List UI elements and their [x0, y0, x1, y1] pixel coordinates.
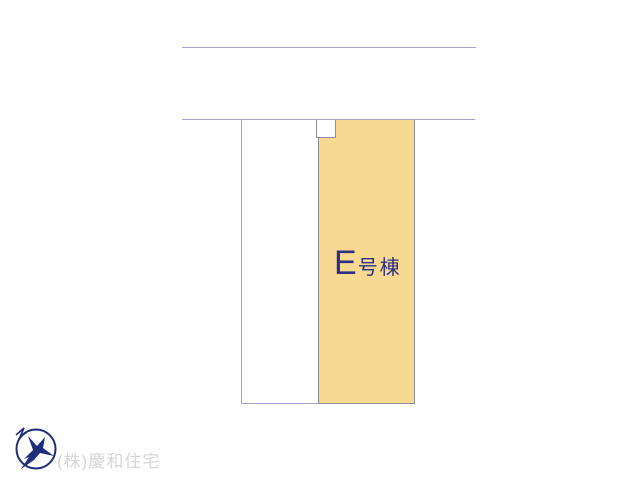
neighbor-plot [241, 119, 320, 404]
plot-notch [316, 119, 336, 138]
plot-label-main: E [334, 244, 358, 282]
company-name: (株)慶和住宅 [57, 447, 160, 472]
footer: (株)慶和住宅 [0, 420, 260, 480]
plot-building-e: E号棟 [318, 119, 415, 404]
road-boundary-line-bottom [182, 119, 475, 120]
road-boundary-line-top [182, 47, 476, 48]
plot-label-suffix: 号棟 [358, 257, 402, 279]
bird-logo-icon [13, 425, 58, 472]
plot-label: E号棟 [334, 246, 402, 280]
site-plan-diagram: E号棟 (株)慶和住宅 [0, 0, 640, 480]
